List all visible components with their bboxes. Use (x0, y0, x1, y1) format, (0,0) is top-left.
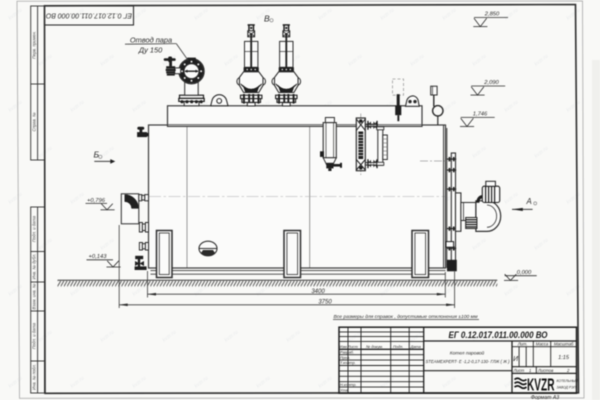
svg-text:2,090: 2,090 (483, 80, 499, 86)
svg-text:КОТЕЛЬНЫЙ: КОТЕЛЬНЫЙ (557, 379, 579, 383)
svg-text:№ докум.: № докум. (366, 344, 383, 349)
svg-text:В: В (264, 14, 270, 24)
svg-text:+0,796: +0,796 (87, 198, 106, 204)
svg-text:Листов: Листов (537, 368, 554, 373)
svg-text:KVZR: KVZR (527, 375, 555, 395)
svg-text:1: 1 (529, 368, 531, 373)
svg-text:3750: 3750 (318, 299, 332, 305)
svg-text:Масштаб: Масштаб (554, 341, 574, 346)
svg-text:Лист: Лист (513, 368, 525, 373)
svg-text:Справ. №: Справ. № (32, 112, 37, 131)
svg-text:Подп. и дата: Подп. и дата (32, 215, 37, 242)
svg-text:+0,143: +0,143 (89, 254, 108, 260)
svg-text:ЗАВОД РЭП: ЗАВОД РЭП (557, 385, 577, 389)
svg-text:2,850: 2,850 (484, 12, 500, 18)
svg-text:Котел паровой: Котел паровой (450, 350, 485, 357)
svg-text:Изм.Лист: Изм.Лист (340, 344, 359, 349)
svg-text:Лит.: Лит. (517, 341, 528, 346)
svg-text:Н.контр.: Н.контр. (340, 382, 356, 387)
svg-text:А: А (526, 197, 532, 206)
svg-text:Разраб.: Разраб. (340, 349, 354, 354)
svg-text:Утв.: Утв. (340, 387, 349, 392)
svg-text:1:15: 1:15 (558, 355, 570, 361)
svg-text:Инв. № подл.: Инв. № подл. (32, 364, 37, 390)
svg-text:3400: 3400 (311, 289, 325, 295)
svg-text:Перв. примен.: Перв. примен. (32, 31, 37, 59)
svg-text:Подп.: Подп. (393, 344, 403, 349)
svg-text:Масса: Масса (536, 341, 549, 346)
svg-text:STEAMEXPERT- Е -1,2-0,17-130-: STEAMEXPERT- Е -1,2-0,17-130- ГЛЖ ( Ж ) (426, 359, 510, 364)
svg-text:Дата: Дата (410, 344, 422, 349)
svg-text:Подп. и дата: Подп. и дата (32, 322, 37, 349)
svg-text:Отвод пара: Отвод пара (130, 36, 172, 45)
svg-text:Ду 150: Ду 150 (138, 45, 163, 54)
svg-text:Пров.: Пров. (340, 355, 350, 360)
svg-text:Б: Б (94, 149, 100, 159)
svg-text:Инв. № дубл.: Инв. № дубл. (32, 254, 37, 280)
svg-text:Т.контр.: Т.контр. (340, 360, 356, 365)
svg-text:ЕГ 0.12.017.011.00.000 ВО: ЕГ 0.12.017.011.00.000 ВО (45, 12, 132, 19)
svg-text:1,746: 1,746 (473, 112, 488, 118)
svg-text:0,000: 0,000 (517, 270, 532, 276)
svg-text:ЕГ 0.12.017.011.00.000 ВО: ЕГ 0.12.017.011.00.000 ВО (449, 330, 548, 341)
svg-text:Взам. инв. №: Взам. инв. № (32, 283, 37, 309)
svg-text:Все размеры для справок , допу: Все размеры для справок , допустимые отк… (334, 314, 479, 319)
svg-text:Формат А3: Формат А3 (531, 395, 559, 400)
